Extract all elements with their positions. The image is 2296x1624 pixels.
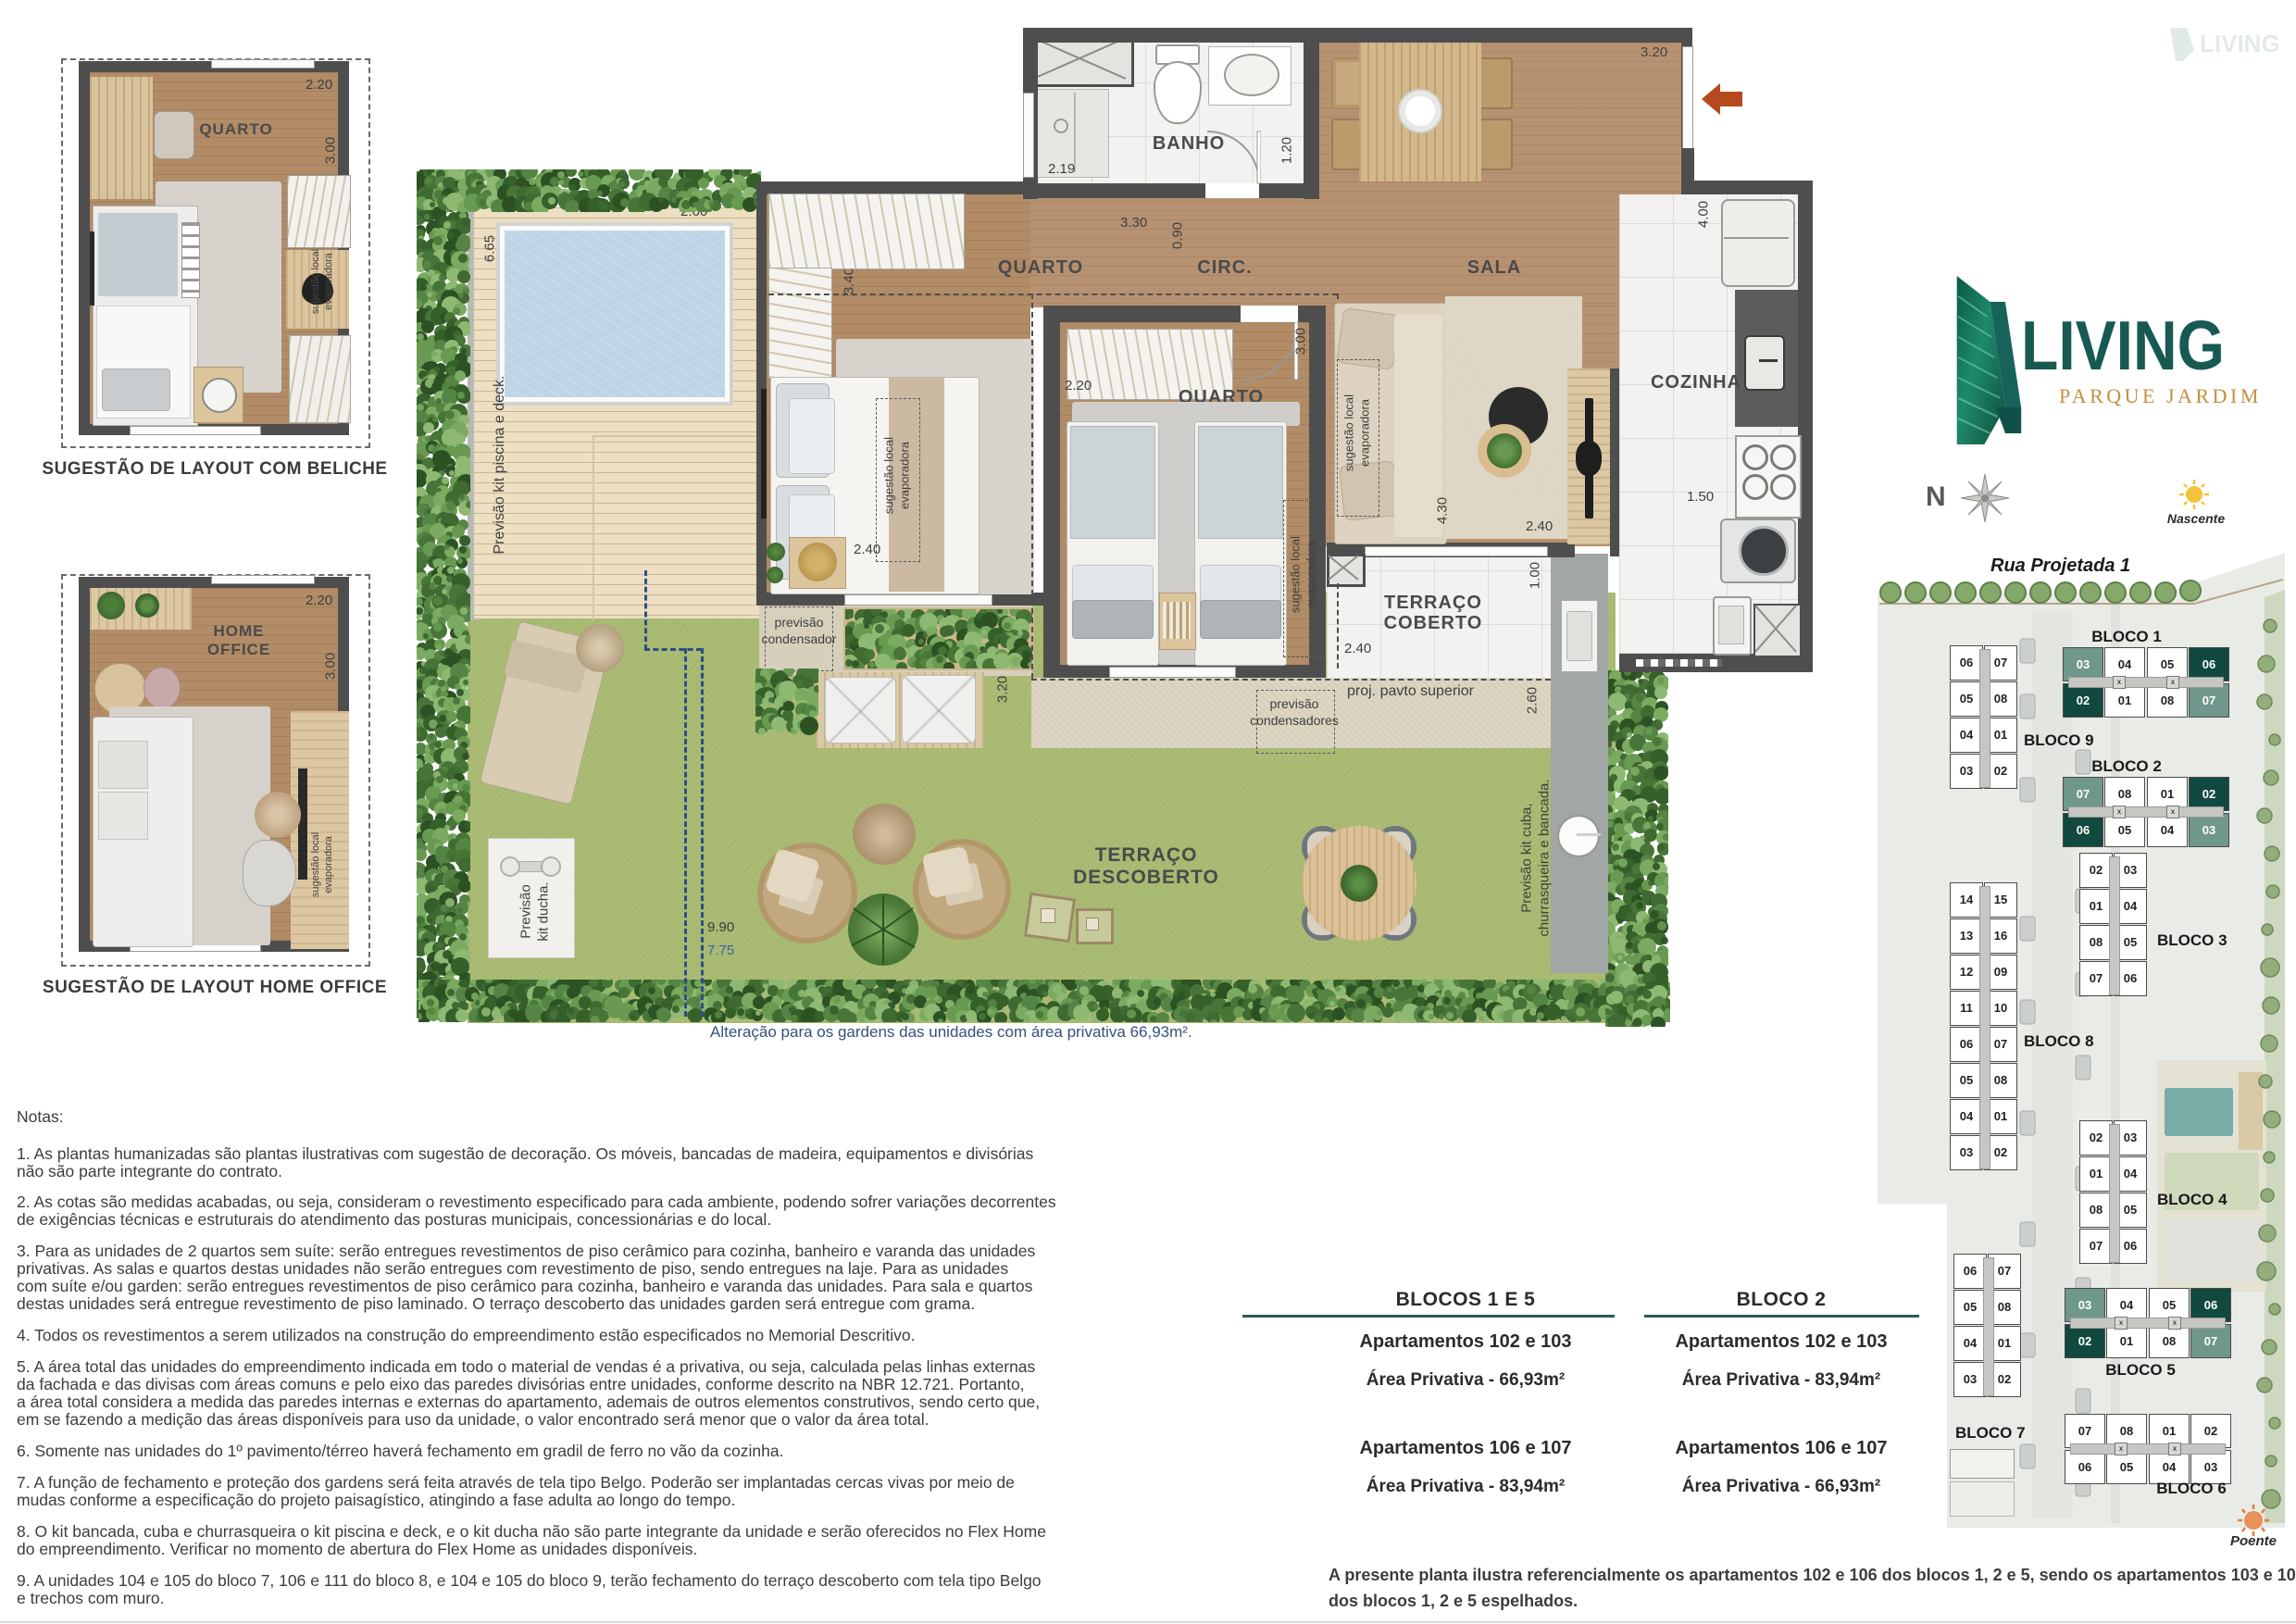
svg-text:LIVING: LIVING [2200,30,2280,57]
